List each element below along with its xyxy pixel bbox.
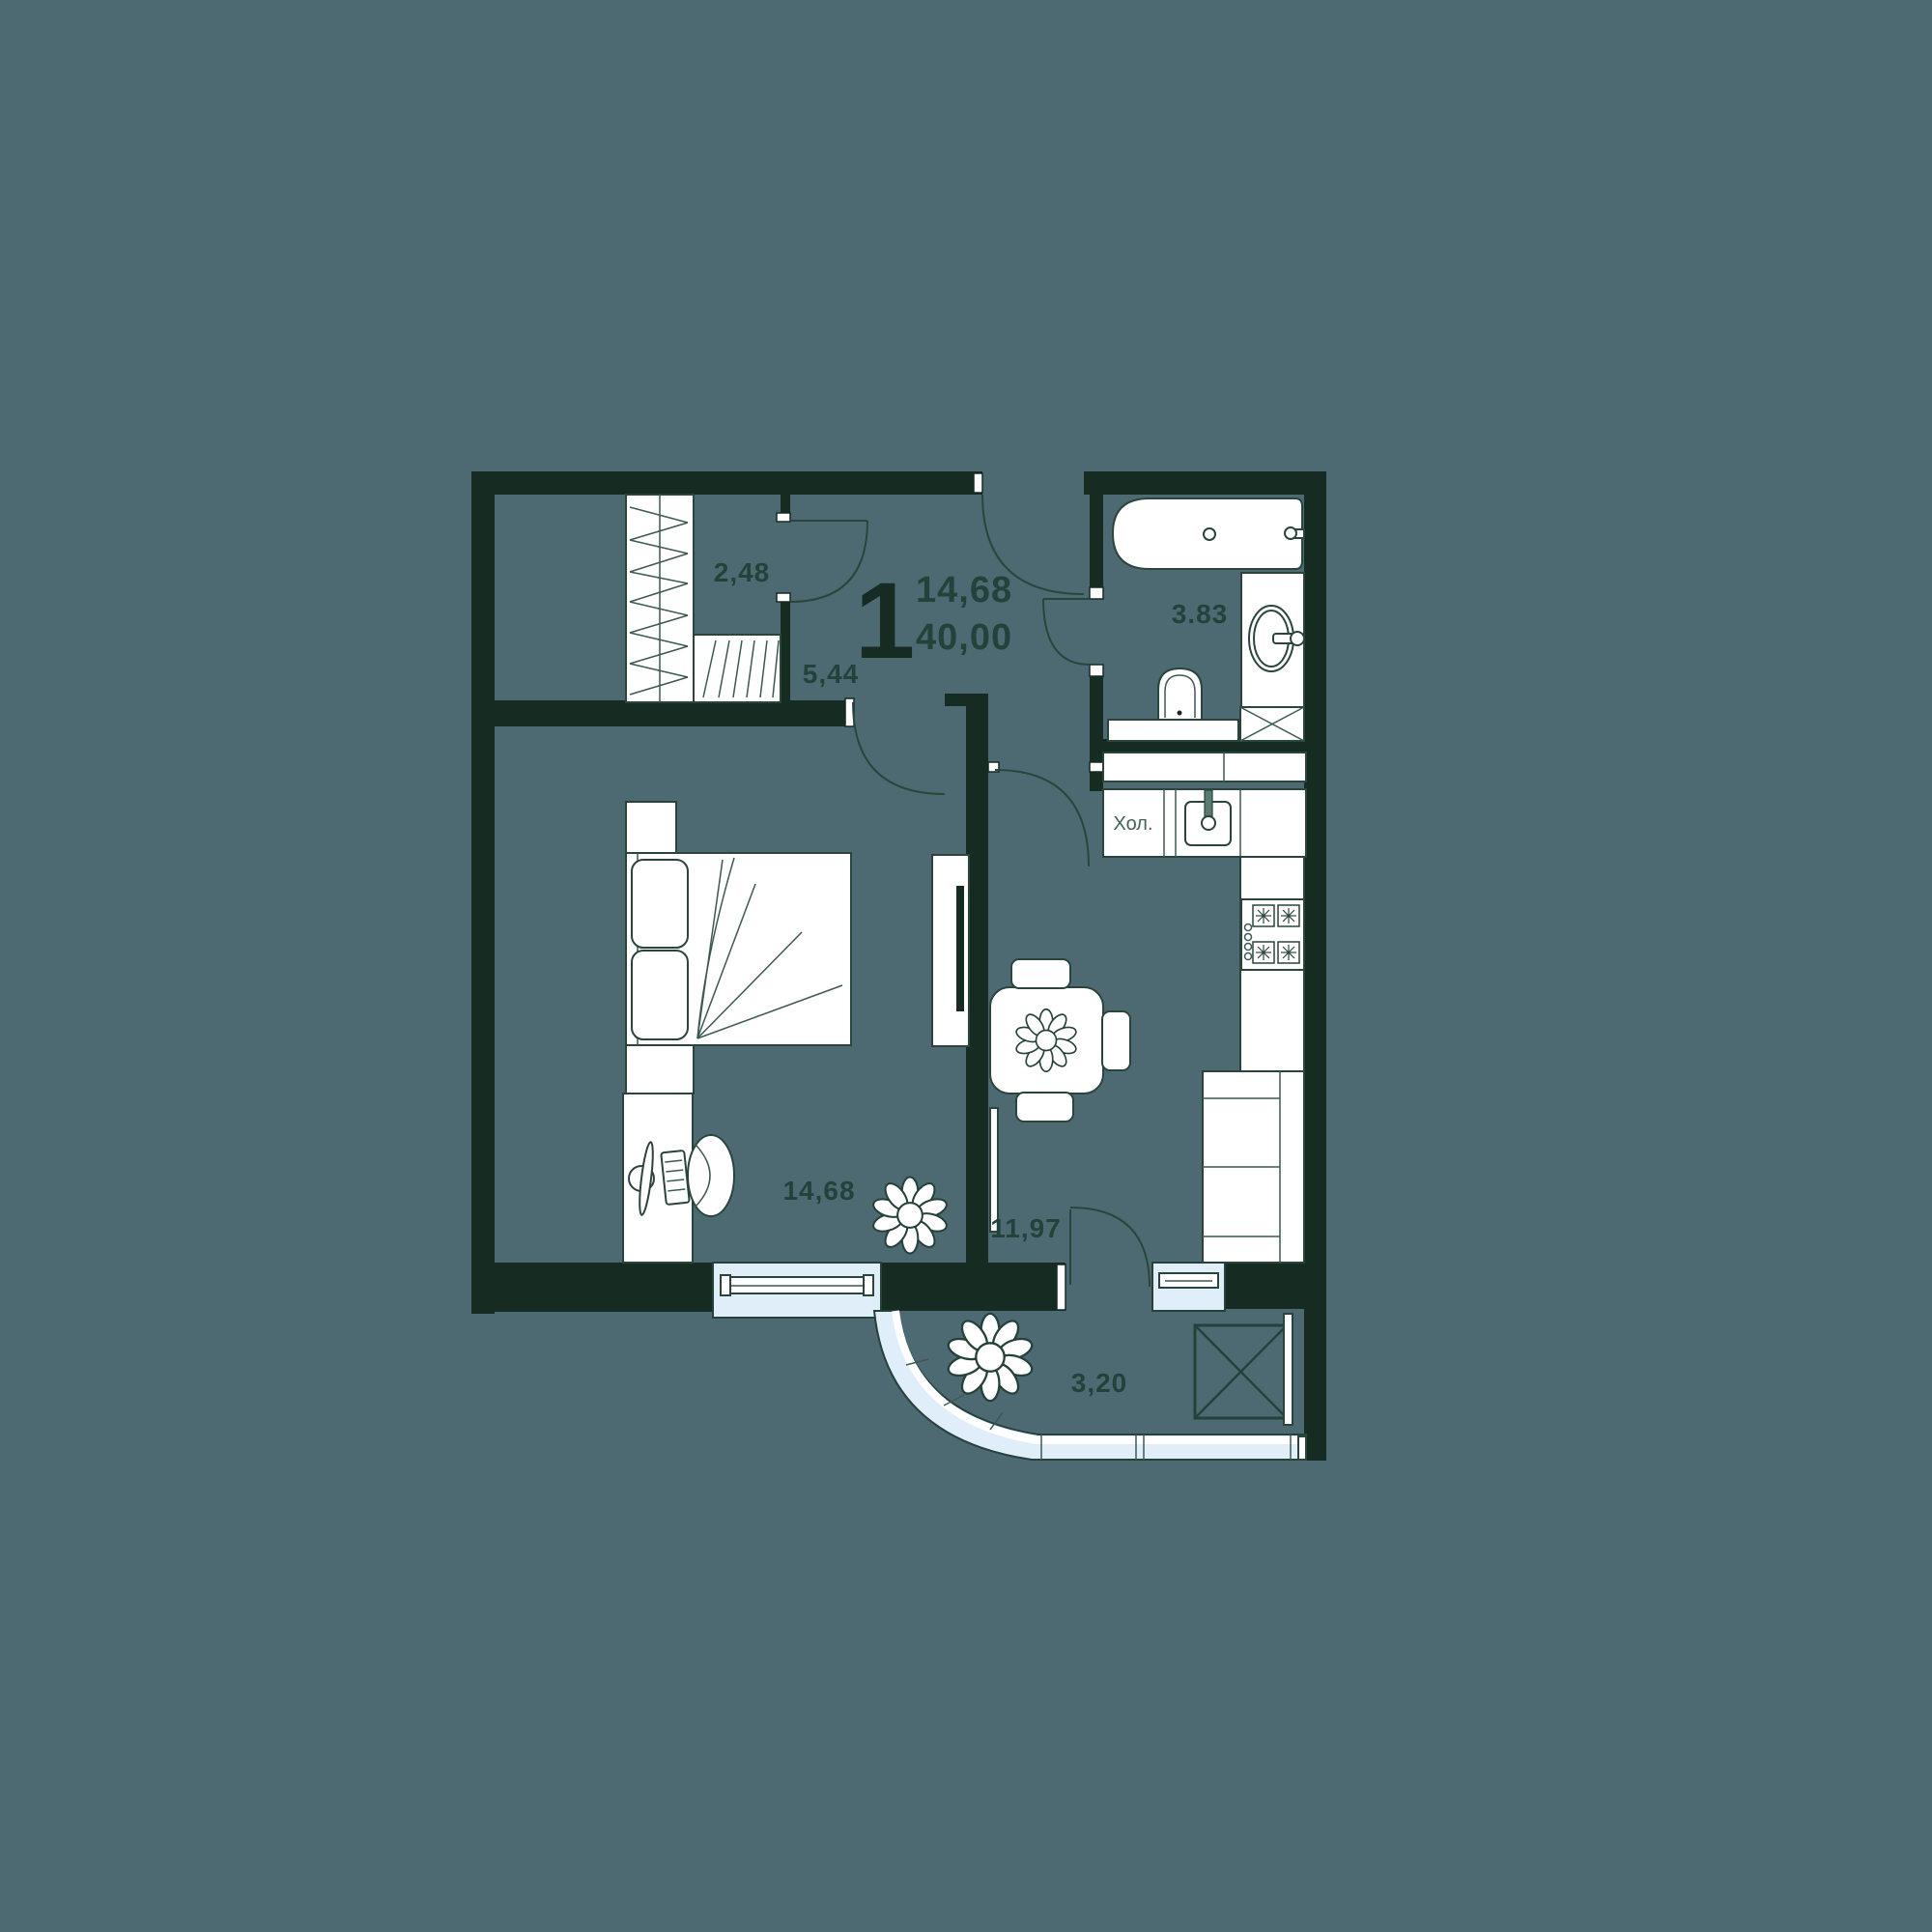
bathroom-door-jamb-top (1090, 587, 1103, 599)
toilet-cistern (1108, 720, 1238, 741)
bathroom-door-jamb-bottom (1090, 665, 1103, 676)
bathtub-faucet-handle (1285, 527, 1296, 539)
wall-wardrobe-stub-bottom (781, 602, 790, 702)
balcony-glazing-cap (1298, 1436, 1306, 1460)
sofa (1203, 1071, 1304, 1263)
wall-bottom-middle (881, 1263, 1065, 1311)
nightstand-bottom (626, 1045, 694, 1094)
bedroom-tv (956, 886, 964, 1011)
nightstand-top (626, 802, 676, 853)
sink-faucet-handle (1291, 632, 1304, 645)
apartment-total-area: 40,00 (916, 617, 1012, 658)
apartment-rooms-count: 1 (855, 560, 915, 681)
bedroom-window (713, 1263, 881, 1318)
entrance-door-jamb (974, 473, 982, 493)
chair-bottom (1016, 1093, 1073, 1122)
bed (626, 853, 851, 1045)
wall-bottom-right (1225, 1263, 1306, 1309)
keyboard-icon (661, 1151, 690, 1205)
hallway-area-label: 5,44 (803, 659, 860, 689)
kitchen-window (1152, 1263, 1225, 1311)
wall-top-left (471, 471, 982, 495)
fridge-label: Хол. (1113, 813, 1152, 835)
bedroom-area-label: 14,68 (782, 1176, 855, 1206)
balcony-door-arc (1070, 1207, 1150, 1287)
wardrobe-door-jamb-top (777, 513, 790, 522)
kitchen-passage-jamb-right (1090, 762, 1103, 772)
chair-top (1011, 959, 1070, 988)
bathroom-area-label: 3.83 (1172, 599, 1229, 629)
wardrobe-door-jamb-bottom (777, 593, 790, 602)
kitchen-area-label: 11,97 (990, 1213, 1062, 1243)
wall-bathroom-left-bottom (1090, 676, 1103, 791)
floor-plan: Хол. (0, 0, 1932, 1932)
bathroom-door-arc (1043, 599, 1090, 665)
balcony-plant-icon (946, 1314, 1035, 1401)
wall-partition-head (945, 694, 966, 706)
wardrobe-area-label: 2,48 (714, 557, 771, 587)
wall-top-right (1084, 471, 1326, 495)
toilet-flush-dot (1178, 711, 1182, 716)
chair-right (1102, 1011, 1130, 1070)
wall-bottom-left (471, 1263, 713, 1312)
wall-bedroom-top (495, 700, 853, 726)
apartment-living-area: 14,68 (916, 570, 1012, 611)
pillow (632, 951, 688, 1039)
wall-left (471, 471, 495, 1314)
bedroom-plant-icon (871, 1177, 949, 1253)
kitchen-upper-cabinets (1103, 753, 1306, 781)
room-wardrobe (626, 495, 781, 702)
kitchen-door-arc (995, 770, 1089, 867)
bedroom-door-arc (853, 702, 945, 794)
bathtub (1113, 498, 1302, 569)
balcony-storage-box (1195, 1314, 1293, 1425)
desk (623, 1094, 693, 1263)
desk-chair (688, 1135, 734, 1216)
balcony-area-label: 3,20 (1071, 1368, 1128, 1398)
pillow (632, 860, 688, 948)
balcony-door-jamb (1057, 1264, 1065, 1310)
room-kitchen: Хол. (990, 753, 1306, 1263)
washing-machine (1240, 707, 1304, 741)
wall-bathroom-left-top (1090, 493, 1103, 587)
wall-right (1304, 493, 1326, 1461)
stove (1241, 899, 1304, 970)
